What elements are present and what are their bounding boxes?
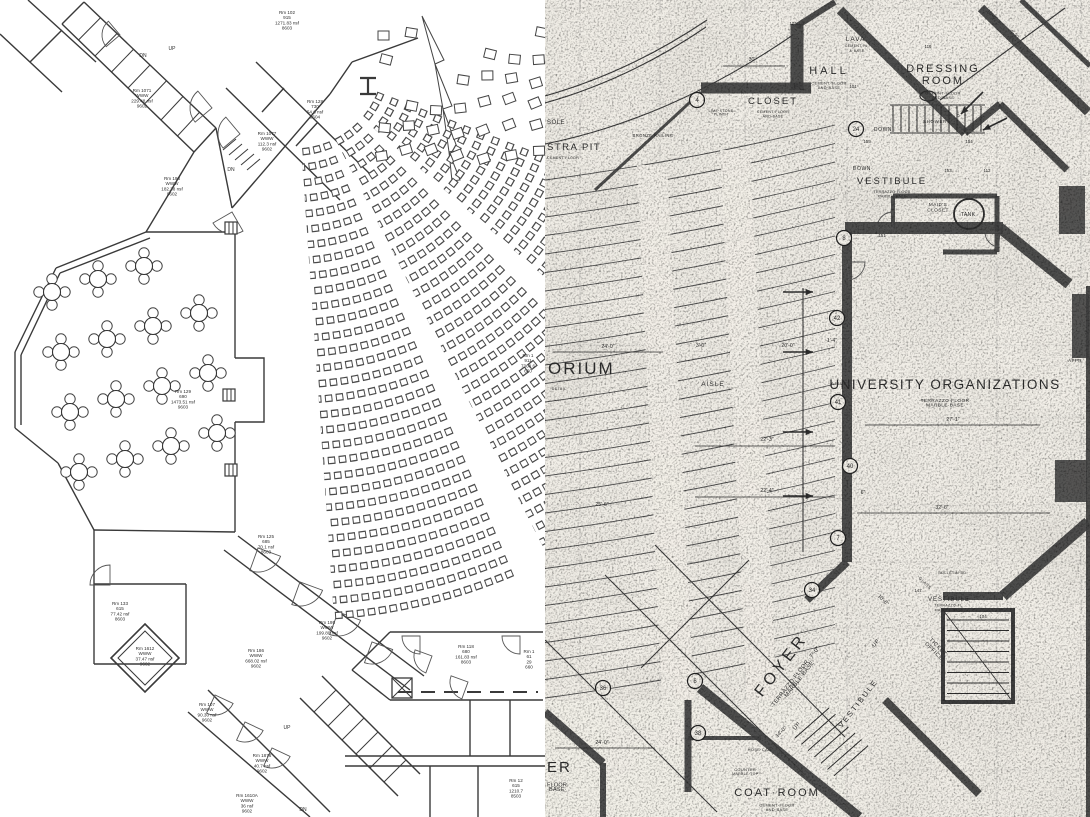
room-label-line: 660 <box>525 665 533 670</box>
chair <box>111 407 121 417</box>
room-label-line: 8603 <box>261 550 272 555</box>
stair-tread <box>370 746 392 768</box>
wall <box>15 428 58 463</box>
loose-chair <box>484 48 497 59</box>
stair-tread <box>79 18 101 40</box>
room-label-line: 9602 <box>167 192 178 197</box>
chair <box>190 368 200 378</box>
chair <box>181 308 191 318</box>
chair <box>106 274 116 284</box>
wall <box>62 2 84 24</box>
wall <box>30 30 62 62</box>
table <box>154 378 171 395</box>
table <box>136 258 153 275</box>
chair <box>107 454 117 464</box>
loose-chair <box>505 150 518 161</box>
table <box>191 305 208 322</box>
chair <box>166 454 176 464</box>
door-arc <box>402 636 420 654</box>
table <box>145 318 162 335</box>
column-symbol <box>223 389 235 401</box>
auditorium-seating <box>301 93 545 616</box>
stair-tread <box>229 144 242 155</box>
room-label-rm125: Rm 12568570.1 nsf8603 <box>258 534 275 555</box>
chair <box>207 308 217 318</box>
left-floor-plan-panel: Rm 1029151271.83 nsf8603Rm 1071WWW229.48… <box>0 0 545 817</box>
seat-row-fill <box>308 230 367 244</box>
stair-label-dn_mid: DN <box>227 167 235 173</box>
chair <box>212 415 222 425</box>
chair <box>144 381 154 391</box>
left-symbols <box>223 78 376 476</box>
room-label-line: 9602 <box>262 147 273 152</box>
door-arc <box>502 636 520 654</box>
loose-chair <box>457 75 469 86</box>
loose-chair <box>530 119 543 131</box>
door-arc <box>90 565 110 585</box>
loose-chair <box>533 55 545 65</box>
chair <box>124 394 134 404</box>
chair <box>69 347 79 357</box>
room-label-rm118: Rm 118680161.83 nsf8603 <box>455 644 477 665</box>
chair <box>157 394 167 404</box>
elevator-x <box>392 678 412 698</box>
room-label-rm195: Rm 195WWW199.80 nsf9602 <box>316 620 338 641</box>
seat-row-fill <box>306 202 355 214</box>
stair-tread <box>112 49 134 72</box>
stair-tread <box>161 97 183 121</box>
loose-chair <box>502 118 515 130</box>
chair <box>157 368 167 378</box>
room-label-line: 9603 <box>178 405 189 410</box>
room-label-line: 8603 <box>282 26 293 31</box>
room-label-rm1077: Rm 1077WWW112.3 nsf9602 <box>258 131 277 152</box>
seat-row <box>308 230 367 244</box>
chair <box>47 300 57 310</box>
seat-row-fill <box>312 287 391 306</box>
stair-tread <box>235 149 248 160</box>
loose-chair <box>502 92 515 104</box>
chair <box>133 454 143 464</box>
chair <box>56 334 66 344</box>
room-label-rm102: Rm 1029151271.83 nsf8603 <box>275 10 300 31</box>
loose-chair <box>379 123 391 133</box>
column-symbol <box>225 222 237 234</box>
chair <box>199 428 209 438</box>
chair <box>135 321 145 331</box>
room-label-rm1rb: Rm 16129660 <box>524 649 535 670</box>
loose-chair <box>478 96 491 108</box>
floor-plan-comparison: Rm 1029151271.83 nsf8603Rm 1071WWW229.48… <box>0 0 1090 817</box>
loose-chairs <box>375 27 545 165</box>
chair <box>148 334 158 344</box>
room-label-line: 9602 <box>140 662 151 667</box>
room-label-line: 9602 <box>137 104 148 109</box>
right-floor-plan-panel: ORIUMDETAILSOLESTRA PITCEMENT FLOORBRONZ… <box>545 0 1090 817</box>
loose-chair <box>529 77 542 89</box>
stair-tread <box>384 760 406 782</box>
room-label-line: 9604 <box>310 115 321 120</box>
seat-row <box>534 432 545 529</box>
loose-chair <box>375 151 387 162</box>
table <box>62 404 79 421</box>
chair <box>74 480 84 490</box>
table <box>90 271 107 288</box>
wall <box>0 34 62 92</box>
chair <box>74 454 84 464</box>
loose-chair <box>528 97 542 109</box>
chair <box>225 428 235 438</box>
chair <box>61 467 71 477</box>
room-label-rm186: Rm 186WWW668.02 nsf9602 <box>245 648 267 669</box>
table <box>117 451 134 468</box>
chair <box>203 355 213 365</box>
room-label-rm198: Rm 198WWW182.38 nsf9602 <box>161 176 183 197</box>
chair <box>179 441 189 451</box>
chair <box>47 274 57 284</box>
door-arc <box>450 676 468 699</box>
stage-edge-spike <box>435 64 452 109</box>
left-floor-plan: Rm 1029151271.83 nsf8603Rm 1071WWW229.48… <box>0 0 545 817</box>
room-label-line: 9602 <box>202 718 213 723</box>
chair <box>212 441 222 451</box>
room-label-line: 8503 <box>511 794 522 799</box>
chair <box>80 274 90 284</box>
stair-tread <box>95 34 117 57</box>
chair <box>65 394 75 404</box>
door-arc <box>292 582 323 606</box>
chair <box>52 407 62 417</box>
loose-chair <box>380 54 393 65</box>
stair-tread <box>223 139 236 150</box>
chair <box>120 441 130 451</box>
wall <box>352 670 390 700</box>
stair-tread <box>128 65 150 88</box>
room-label-line: 9602 <box>257 769 268 774</box>
wall <box>235 358 264 422</box>
stair-label-dn_top: DN <box>139 53 147 59</box>
chair <box>139 248 149 258</box>
chair <box>98 394 108 404</box>
chair <box>93 287 103 297</box>
stair-tread <box>314 690 336 712</box>
room-label-line: 8603 <box>461 660 472 665</box>
room-label-rm128: Rm 12873054.6 nsf9604 <box>307 99 324 120</box>
room-label-line: 8603 <box>115 617 126 622</box>
wall <box>28 0 96 62</box>
loose-chair <box>505 73 517 84</box>
chair <box>56 360 66 370</box>
right-floor-plan: ORIUMDETAILSOLESTRA PITCEMENT FLOORBRONZ… <box>545 0 1090 817</box>
chair <box>102 321 112 331</box>
chair <box>78 407 88 417</box>
chair <box>43 347 53 357</box>
chair <box>115 334 125 344</box>
room-label-rm107: Rm 107WWW90.30 nsf9602 <box>198 702 218 723</box>
stair-label-up_top: UP <box>169 46 177 52</box>
chair <box>194 321 204 331</box>
loose-chair <box>482 71 493 80</box>
seat-row-fill <box>534 432 545 529</box>
chair <box>148 308 158 318</box>
room-label-rm1071: Rm 1071WWW229.48 nsf9602 <box>131 88 153 109</box>
wall <box>194 128 216 152</box>
table <box>99 331 116 348</box>
loose-chair <box>405 100 418 111</box>
table <box>209 425 226 442</box>
room-label-rm1610a: Rm 1610AWWW36 nsf9602 <box>236 793 259 814</box>
wall <box>94 530 235 532</box>
chair <box>93 261 103 271</box>
wall <box>300 698 398 796</box>
i-beam-column <box>360 78 376 94</box>
chair <box>60 287 70 297</box>
chair <box>194 295 204 305</box>
stair-label-dn_bottom: DN <box>299 807 307 813</box>
chair <box>102 347 112 357</box>
table <box>108 391 125 408</box>
chair <box>216 368 226 378</box>
chair <box>152 261 162 271</box>
loose-chair <box>405 27 417 38</box>
stair-tread <box>356 732 378 754</box>
room-label-line: 9602 <box>242 809 253 814</box>
chair <box>87 467 97 477</box>
chair <box>126 261 136 271</box>
chair <box>89 334 99 344</box>
chair <box>161 321 171 331</box>
loose-chair <box>403 121 415 131</box>
chair <box>34 287 44 297</box>
stair-tread <box>328 704 350 726</box>
loose-chair <box>509 54 521 64</box>
loose-chair <box>399 144 412 156</box>
table <box>44 284 61 301</box>
stair-tread <box>178 112 200 136</box>
loose-chair <box>533 146 544 155</box>
wall <box>208 690 330 812</box>
chair <box>203 381 213 391</box>
door-arc <box>218 117 240 148</box>
stage-edge-spike <box>422 16 444 64</box>
loose-chair <box>535 27 545 38</box>
loose-chair <box>454 103 466 113</box>
chair <box>120 467 130 477</box>
stair-label-up_bottom: UP <box>284 725 292 731</box>
table <box>71 464 88 481</box>
chair <box>153 441 163 451</box>
room-label-line: 660 <box>524 369 532 374</box>
wall <box>330 62 352 94</box>
table <box>200 365 217 382</box>
wall <box>296 122 318 146</box>
lobby-tables <box>34 248 235 490</box>
stair-tread <box>342 718 364 740</box>
table <box>53 344 70 361</box>
chair <box>111 381 121 391</box>
room-label-line: 9602 <box>322 636 333 641</box>
table <box>163 438 180 455</box>
loose-chair <box>378 31 389 40</box>
loose-chair <box>427 124 440 135</box>
scan-grain <box>545 0 1090 817</box>
room-label-rm12: Rm 126151210.78503 <box>509 778 523 799</box>
room-label-rm129: Rm 1296901473.51 nsf9603 <box>171 389 196 410</box>
column-symbol <box>225 464 237 476</box>
chair <box>65 420 75 430</box>
room-label-line: 9602 <box>251 664 262 669</box>
wall <box>262 88 284 112</box>
loose-chair <box>430 106 441 116</box>
chair <box>139 274 149 284</box>
seat-row <box>505 160 545 243</box>
room-label-rm133: Rm 13361577.42 nsf8603 <box>111 601 131 622</box>
stair-tread <box>241 154 254 165</box>
stair-tread <box>247 159 260 170</box>
chair <box>166 428 176 438</box>
